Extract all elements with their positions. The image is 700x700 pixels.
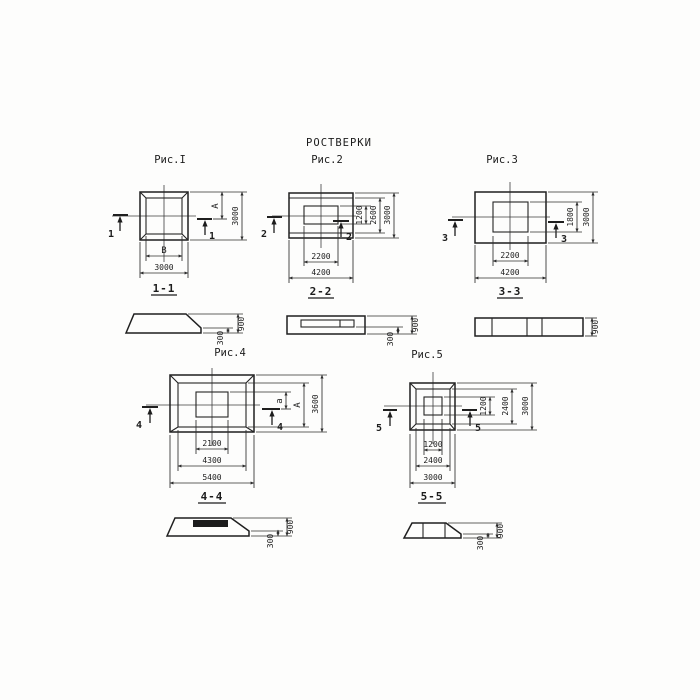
section-profile: [126, 314, 201, 333]
sec4-height-total: 900: [286, 520, 295, 535]
fig4-cut-label-left: 4: [136, 420, 142, 431]
sec1-height-edge: 300: [216, 331, 225, 346]
fig5-cut-label-left: 5: [376, 423, 382, 434]
sec3-height-total: 900: [591, 320, 600, 335]
fig5-dim-outer-height: 3000: [521, 396, 530, 415]
fig2-dim-mid-height: 2600: [369, 205, 378, 224]
fig2-cut-label-inner: 2: [346, 232, 352, 243]
cut-arrow: [202, 220, 207, 227]
fig5-plan: Рис.5 5 5 1200 2400 3000 1200: [376, 349, 537, 503]
sheet-title: РОСТВЕРКИ: [306, 137, 372, 149]
sec5-height-total: 900: [496, 524, 505, 539]
fig2-caption: Рис.2: [311, 154, 343, 166]
cut-arrow: [553, 223, 558, 230]
fig5-caption: Рис.5: [411, 349, 443, 361]
fig5-dim-inner-width: 1200: [423, 440, 442, 449]
fig1-plan: Рис.I 1 1 А 3000 В 3000 1-1: [108, 154, 247, 295]
cut-arrow: [467, 411, 472, 418]
fig1-section-label: 1-1: [153, 282, 176, 295]
sec2-height-edge: 300: [386, 332, 395, 347]
fig5-dim-mid-height: 2400: [501, 396, 510, 415]
fig4-dim-mid-width: 4300: [202, 456, 221, 465]
fig4-cut-label-inner: 4: [277, 422, 283, 433]
fig3-cut-label-left: 3: [442, 233, 448, 244]
sec5-height-edge: 300: [476, 536, 485, 551]
fig4-caption: Рис.4: [214, 347, 246, 359]
cut-arrow: [271, 218, 276, 225]
fig4-dim-inner-height: а: [275, 398, 285, 403]
fig3-caption: Рис.3: [486, 154, 518, 166]
cut-arrow: [117, 216, 122, 223]
fig3-dim-inner-height: 1800: [566, 207, 575, 226]
section-5-5-view: 300 900: [404, 523, 505, 550]
fig2-cut-label-left: 2: [261, 229, 267, 240]
fig5-outer-edge: [410, 383, 455, 430]
fig1-dim-inner-height: А: [211, 203, 221, 209]
sec2-height-total: 900: [411, 318, 420, 333]
section-recess-filled: [193, 520, 228, 527]
fig1-dim-outer-width: 3000: [154, 263, 173, 272]
sec4-height-edge: 300: [266, 534, 275, 549]
fig1-caption: Рис.I: [154, 154, 186, 166]
fig5-section-label: 5-5: [421, 490, 444, 503]
fig3-dim-inner-width: 2200: [500, 251, 519, 260]
sec1-height-total: 900: [237, 317, 246, 332]
corner-bevel-lines: [410, 383, 455, 430]
section-profile: [475, 318, 583, 336]
drawing-sheet: РОСТВЕРКИ Рис.I 1 1 А 3000 В 3000: [0, 0, 700, 700]
fig3-section-label: 3-3: [499, 285, 522, 298]
cut-arrow: [147, 408, 152, 415]
fig2-plan: Рис.2 2 2 1200 2600 3000 2200: [261, 154, 399, 298]
fig4-dim-outer-height: 3600: [311, 394, 320, 413]
fig5-dim-outer-width: 3000: [423, 473, 442, 482]
fig3-plan: Рис.3 3 3 1800 3000 2200 4200 3-3: [442, 154, 598, 298]
cut-arrow: [387, 411, 392, 418]
section-3-3-view: 900: [475, 318, 600, 336]
fig3-dim-outer-height: 3000: [582, 207, 591, 226]
fig1-dim-outer-height: 3000: [231, 206, 240, 225]
fig2-dim-inner-width: 2200: [311, 252, 330, 261]
cut-arrow: [452, 221, 457, 228]
fig4-dim-inner-width: 2100: [202, 439, 221, 448]
fig5-dim-inner-height: 1200: [479, 396, 488, 415]
section-profile: [287, 316, 365, 334]
fig4-dim-outer-width: 5400: [202, 473, 221, 482]
fig4-section-label: 4-4: [201, 490, 224, 503]
fig2-dim-outer-height: 3000: [383, 205, 392, 224]
fig5-cut-label-inner: 5: [475, 423, 481, 434]
fig2-dim-inner-height: 1200: [355, 205, 364, 224]
fig2-section-label: 2-2: [310, 285, 333, 298]
fig4-plan: Рис.4 4 4 а А 3600 2100: [136, 347, 327, 503]
fig3-outer-edge: [475, 192, 546, 243]
cut-arrow: [269, 410, 274, 417]
fig5-dim-mid-width: 2400: [423, 456, 442, 465]
section-1-1-view: 300 900: [126, 314, 246, 345]
fig1-dim-inner-width: В: [161, 246, 166, 256]
fig1-cut-label-left: 1: [108, 229, 114, 240]
fig3-dim-outer-width: 4200: [500, 268, 519, 277]
section-profile: [404, 523, 461, 538]
fig4-dim-mid-height: А: [293, 402, 303, 408]
fig2-dim-outer-width: 4200: [311, 268, 330, 277]
cut-arrow: [338, 222, 343, 229]
section-2-2-view: 300 900: [287, 316, 420, 346]
grillage-technical-drawing: РОСТВЕРКИ Рис.I 1 1 А 3000 В 3000: [0, 0, 700, 700]
section-recess: [301, 320, 354, 327]
section-4-4-view: 300 900: [167, 518, 295, 548]
